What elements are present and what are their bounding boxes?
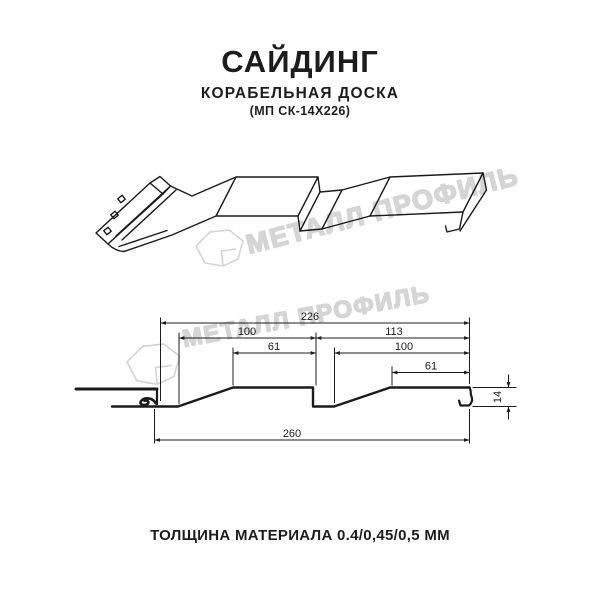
dim-label-100-right: 100 xyxy=(395,341,413,353)
thickness-note: ТОЛЩИНА МАТЕРИАЛА 0.4/0,45/0,5 ММ xyxy=(0,527,600,544)
dim-label-100-left: 100 xyxy=(238,326,256,338)
watermark-brand-text: МЕТАЛЛ ПРОФИЛЬ xyxy=(243,161,522,260)
profile-right-end xyxy=(459,388,472,406)
dim-label-113: 113 xyxy=(385,326,403,338)
metall-profil-logo-icon xyxy=(196,230,243,266)
dim-label-226: 226 xyxy=(301,311,319,323)
drawing-canvas: МЕТАЛЛ ПРОФИЛЬ МЕТАЛЛ ПРОФИЛЬ xyxy=(0,0,600,600)
dim-label-61-right: 61 xyxy=(425,361,437,373)
dim-label-260: 260 xyxy=(283,428,301,440)
profile-outline xyxy=(112,388,470,407)
lock-seam-curl xyxy=(140,398,156,405)
dim-label-14: 14 xyxy=(492,391,504,403)
dim-label-61-left: 61 xyxy=(268,341,280,353)
metall-profil-logo-icon xyxy=(127,344,180,384)
